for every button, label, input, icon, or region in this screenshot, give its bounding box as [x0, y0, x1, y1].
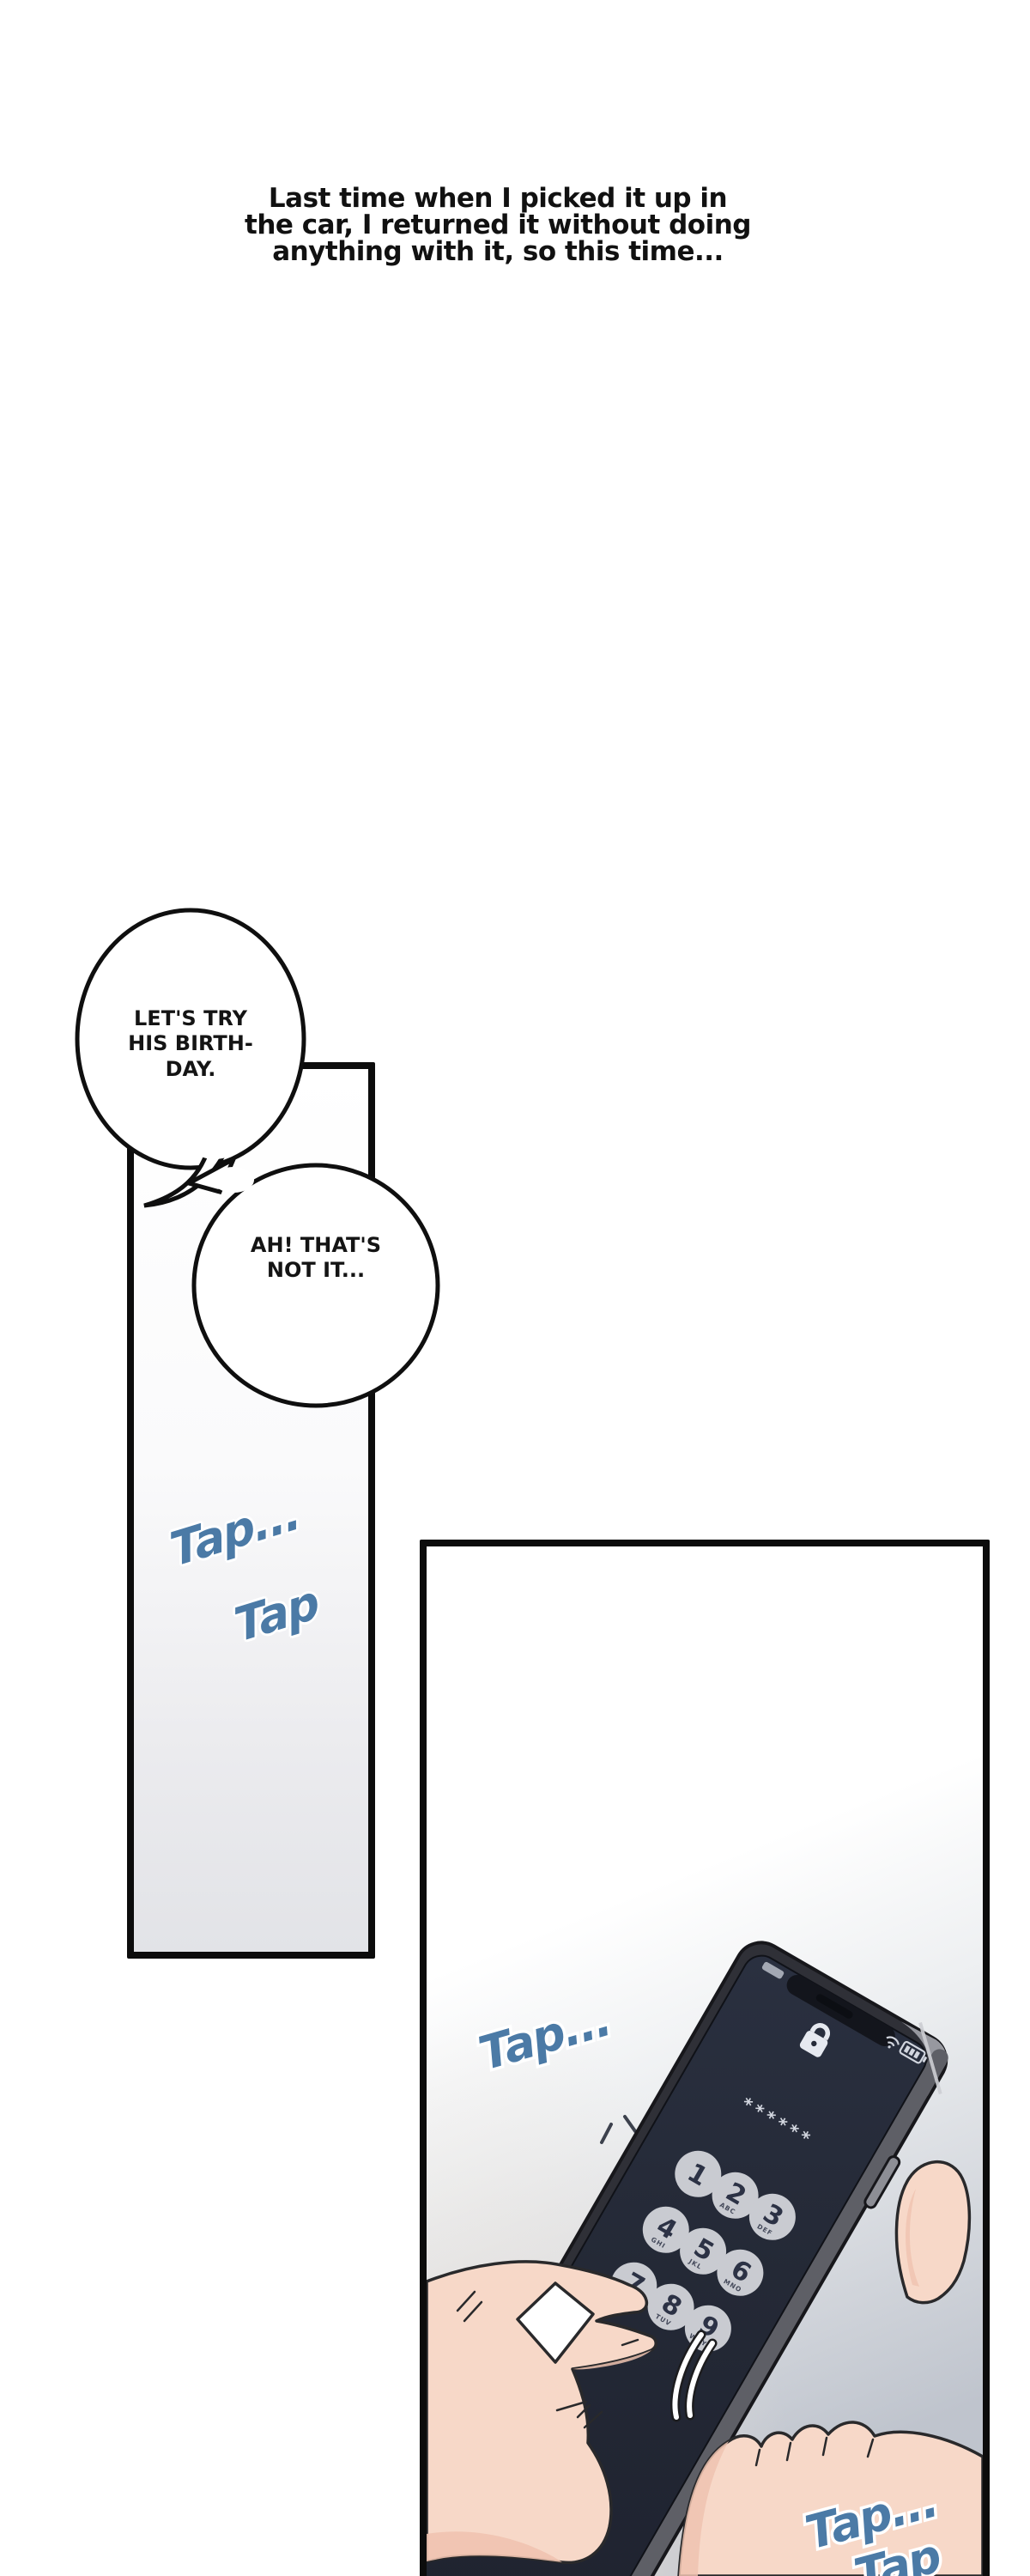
speech-bubble-2 — [194, 1165, 438, 1406]
speech-bubble-2-text: AH! THAT'S NOT IT... — [221, 1233, 410, 1284]
comic-page: Last time when I picked it up in the car… — [0, 0, 1030, 2576]
bubble-line: DAY. — [96, 1057, 285, 1082]
bubble-seam-patch — [213, 1167, 254, 1193]
phone-panel-art: Tap... — [427, 1546, 983, 2576]
panel-phone: Tap... — [420, 1540, 990, 2576]
bubble-line: HIS BIRTH- — [96, 1031, 285, 1056]
bubble-line: NOT IT... — [221, 1258, 410, 1283]
narration-line: Last time when I picked it up in — [69, 185, 927, 212]
bubble-line: LET'S TRY — [96, 1006, 285, 1031]
bubble-seam-patch — [192, 1135, 237, 1159]
narration-line: anything with it, so this time... — [69, 239, 927, 265]
bubble-line: AH! THAT'S — [221, 1233, 410, 1258]
narration-line: the car, I returned it without doing — [69, 212, 927, 239]
narration-caption: Last time when I picked it up in the car… — [69, 185, 927, 265]
speech-bubble-1-text: LET'S TRY HIS BIRTH- DAY. — [96, 1006, 285, 1082]
speech-bubbles — [17, 884, 446, 1451]
